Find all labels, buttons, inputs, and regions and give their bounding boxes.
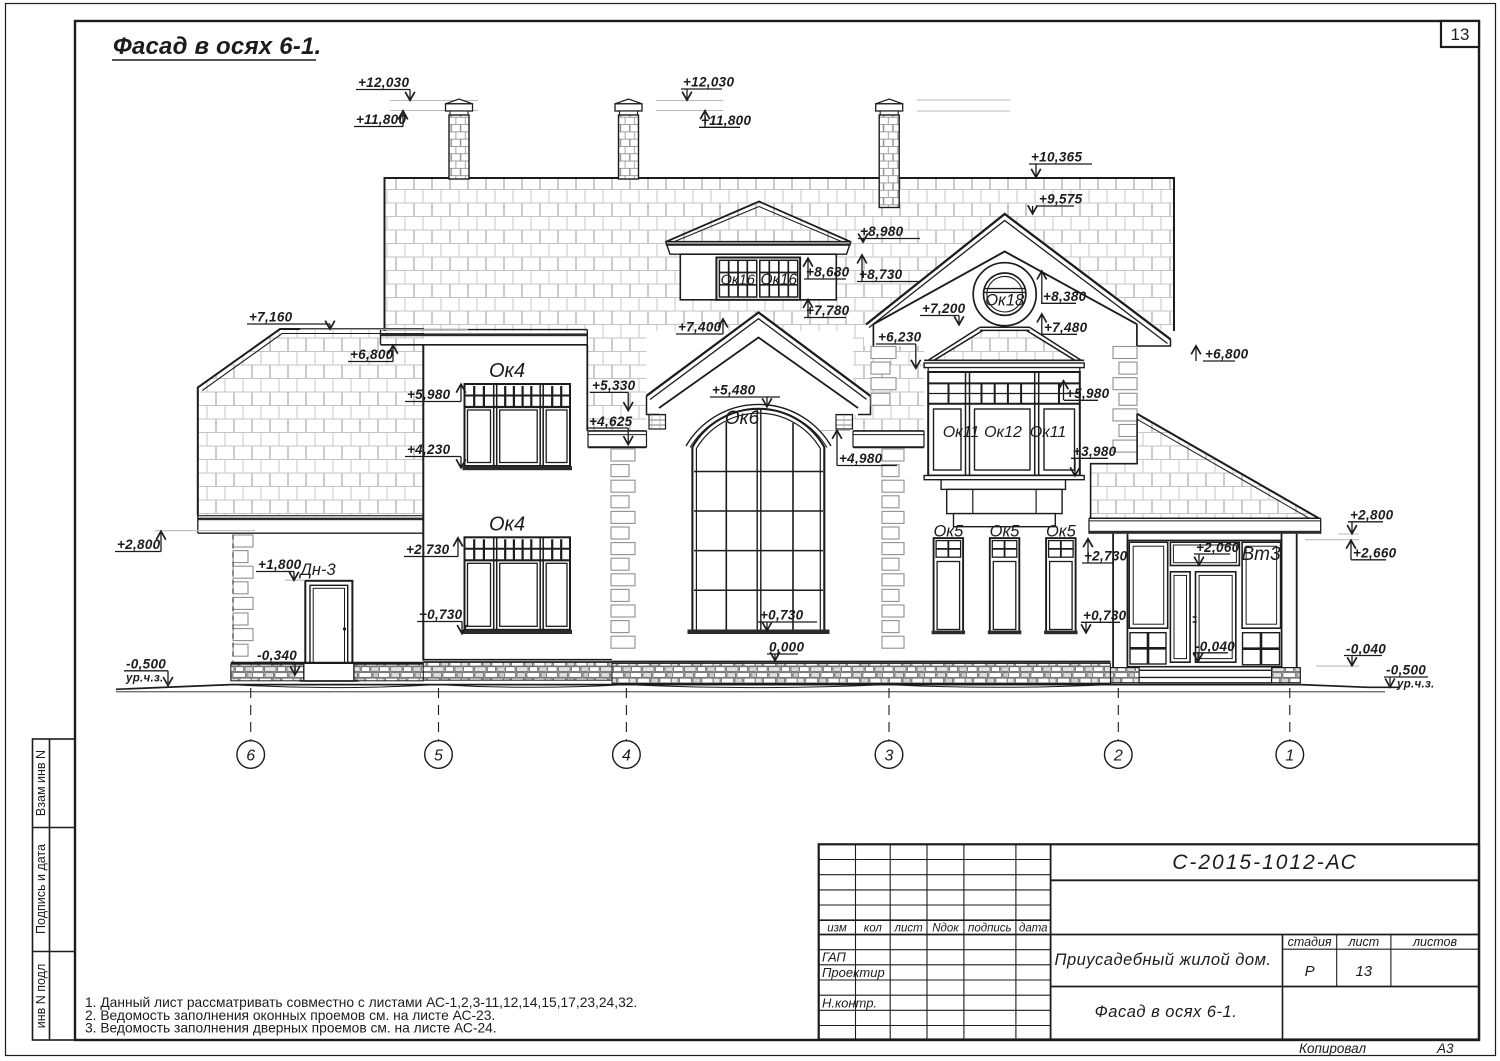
svg-text:+12,030: +12,030 — [358, 75, 409, 90]
svg-text:+5,980: +5,980 — [407, 387, 451, 402]
svg-text:6: 6 — [246, 748, 255, 765]
svg-text:+9,575: +9,575 — [1039, 192, 1083, 207]
svg-text:+6,230: +6,230 — [878, 330, 922, 345]
svg-text:+4,625: +4,625 — [589, 414, 633, 429]
svg-text:Ок11: Ок11 — [943, 424, 980, 441]
svg-text:-0,500: -0,500 — [1386, 663, 1426, 678]
svg-text:Дн-3: Дн-3 — [298, 561, 336, 579]
svg-text:дата: дата — [1019, 923, 1048, 935]
svg-text:Ок5: Ок5 — [933, 523, 964, 541]
svg-text:13: 13 — [1451, 25, 1470, 44]
svg-text:ур.ч.з.: ур.ч.з. — [1396, 679, 1435, 691]
svg-text:Ок4: Ок4 — [489, 360, 525, 382]
svg-text:13: 13 — [1355, 963, 1372, 980]
svg-text:1: 1 — [1285, 748, 1294, 765]
svg-text:стадия: стадия — [1288, 935, 1332, 949]
svg-text:+8,730: +8,730 — [859, 267, 903, 282]
svg-text:Вт3: Вт3 — [1241, 544, 1281, 565]
svg-text:-0,040: -0,040 — [1346, 642, 1386, 657]
svg-text:4: 4 — [622, 748, 631, 765]
svg-text:3. Ведомость заполнения дверны: 3. Ведомость заполнения дверных проемов … — [85, 1021, 497, 1036]
svg-text:листов: листов — [1412, 935, 1457, 949]
svg-text:+4,980: +4,980 — [839, 451, 883, 466]
svg-text:Ок11: Ок11 — [1030, 424, 1067, 441]
svg-text:ур.ч.з.: ур.ч.з. — [125, 673, 164, 685]
svg-text:Nдок: Nдок — [932, 923, 959, 935]
svg-text:лист: лист — [893, 923, 923, 935]
svg-text:инв N подл: инв N подл — [34, 964, 48, 1029]
svg-text:+5,330: +5,330 — [592, 378, 636, 393]
svg-text:-0,500: -0,500 — [126, 657, 166, 672]
svg-text:А3: А3 — [1436, 1041, 1454, 1056]
svg-text:0,000: 0,000 — [769, 640, 804, 655]
svg-text:+0,730: +0,730 — [760, 608, 804, 623]
svg-text:-0,340: -0,340 — [257, 648, 297, 663]
svg-text:-0,040: -0,040 — [1195, 639, 1235, 654]
svg-text:Ок5: Ок5 — [1046, 523, 1077, 541]
svg-text:Взам инв N: Взам инв N — [34, 750, 48, 816]
svg-text:Проектир: Проектир — [822, 965, 885, 980]
svg-text:+5,980: +5,980 — [1066, 386, 1110, 401]
svg-text:подпись: подпись — [968, 923, 1012, 935]
svg-text:+11,800: +11,800 — [701, 113, 751, 128]
svg-text:лист: лист — [1347, 935, 1379, 949]
svg-text:Н.контр.: Н.контр. — [822, 995, 877, 1010]
svg-text:Р: Р — [1305, 963, 1315, 980]
svg-text:Подпись и дата: Подпись и дата — [34, 844, 48, 934]
svg-text:Ок5: Ок5 — [990, 523, 1021, 541]
svg-text:Ок16: Ок16 — [760, 272, 797, 289]
svg-text:+1,800: +1,800 — [258, 557, 302, 572]
svg-text:Копировал: Копировал — [1299, 1041, 1367, 1056]
svg-text:+0,730: +0,730 — [1083, 608, 1127, 623]
svg-text:+2,800: +2,800 — [117, 537, 161, 552]
svg-text:+3,980: +3,980 — [1073, 444, 1117, 459]
svg-text:+2,060: +2,060 — [1196, 540, 1240, 555]
svg-text:кол: кол — [864, 923, 883, 935]
svg-text:+8,380: +8,380 — [1043, 289, 1087, 304]
svg-text:Ок18: Ок18 — [985, 292, 1025, 310]
svg-text:+7,480: +7,480 — [1044, 320, 1088, 335]
svg-text:изм: изм — [827, 923, 847, 935]
svg-text:+2,660: +2,660 — [1353, 546, 1397, 561]
svg-text:+0,730: +0,730 — [419, 607, 463, 622]
svg-text:3: 3 — [885, 748, 894, 765]
svg-text:Приусадебный жилой дом.: Приусадебный жилой дом. — [1054, 951, 1271, 969]
svg-text:+2,800: +2,800 — [1350, 508, 1394, 523]
svg-text:С-2015-1012-АС: С-2015-1012-АС — [1172, 851, 1358, 874]
svg-text:+7,780: +7,780 — [806, 303, 850, 318]
svg-text:+7,400: +7,400 — [678, 320, 722, 335]
svg-text:+6,800: +6,800 — [1205, 347, 1249, 362]
svg-text:+4,230: +4,230 — [407, 442, 451, 457]
svg-text:Ок6: Ок6 — [725, 408, 760, 429]
svg-text:Фасад в осях 6-1.: Фасад в осях 6-1. — [1095, 1003, 1238, 1021]
svg-text:Фасад в осях 6-1.: Фасад в осях 6-1. — [113, 33, 321, 60]
svg-text:5: 5 — [434, 748, 443, 765]
svg-text:+12,030: +12,030 — [683, 75, 734, 90]
svg-text:ГАП: ГАП — [822, 950, 846, 965]
svg-text:Ок4: Ок4 — [489, 513, 525, 535]
svg-text:+2,730: +2,730 — [1084, 549, 1128, 564]
svg-text:Ок16: Ок16 — [721, 273, 756, 289]
svg-text:+10,365: +10,365 — [1031, 150, 1082, 165]
svg-text:+2,730: +2,730 — [406, 542, 450, 557]
svg-text:+7,160: +7,160 — [249, 310, 293, 325]
svg-text:2: 2 — [1113, 748, 1123, 765]
svg-text:Ок12: Ок12 — [984, 424, 1022, 441]
svg-text:+5,480: +5,480 — [712, 383, 756, 398]
svg-text:+7,200: +7,200 — [922, 301, 966, 316]
svg-text:+6,800: +6,800 — [350, 347, 394, 362]
